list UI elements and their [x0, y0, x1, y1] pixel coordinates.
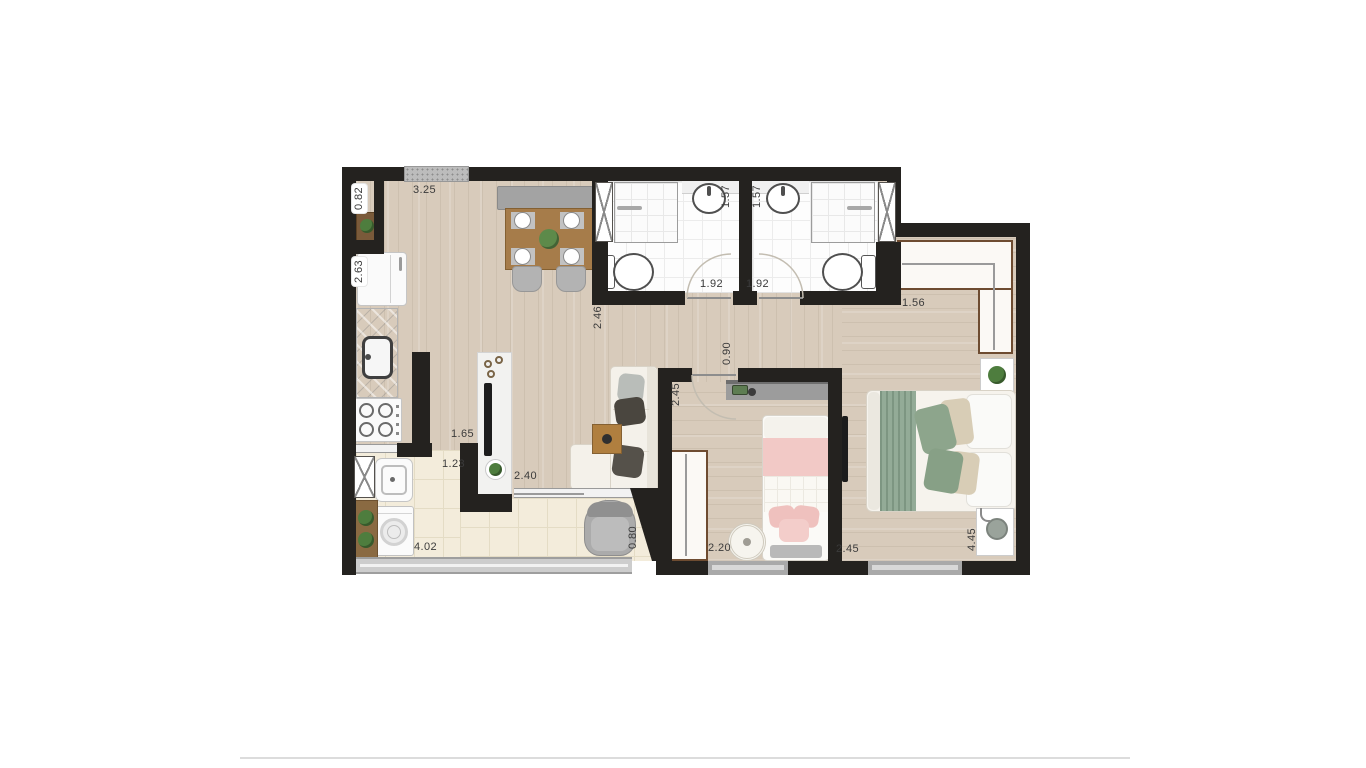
stove — [354, 398, 402, 442]
washer-drum-icon — [387, 525, 401, 539]
wall-bottom-a — [656, 561, 708, 575]
child-bed-base — [770, 545, 822, 558]
bathroom2-toilet-tank — [861, 255, 876, 289]
dim-living-width: 3.25 — [413, 185, 436, 196]
dim-hall-width: 0.90 — [722, 342, 733, 365]
master-closet-right — [978, 288, 1013, 354]
wall-kitchen-service — [397, 443, 432, 457]
stove-knobs — [396, 405, 399, 437]
dim-bath2-depth: 1.57 — [752, 185, 763, 208]
plate-icon — [563, 248, 580, 265]
dim-closet-width: 1.56 — [902, 298, 925, 309]
master-pillow-green — [923, 447, 965, 494]
dim-master-depth: 4.45 — [967, 528, 978, 551]
bathroom1-toilet-bowl — [613, 253, 654, 291]
kitchen-service-door — [356, 444, 397, 453]
plate-icon — [514, 212, 531, 229]
table-centerpiece-plant-icon — [539, 229, 559, 249]
wall-niche-bottom — [342, 240, 384, 254]
dining-chair — [512, 266, 542, 292]
railing-glass-line — [360, 564, 628, 567]
fridge-handle — [399, 257, 402, 271]
side-table-bowl-icon — [602, 434, 612, 444]
floor-plant-icon — [489, 463, 502, 476]
bathroom2-shower — [811, 182, 875, 243]
plant-shelf — [354, 500, 378, 560]
washer-panel-line — [376, 513, 412, 514]
outside-mask — [901, 158, 1033, 223]
balcony-glass-railing — [356, 557, 632, 574]
service-shaft — [354, 456, 375, 498]
master-bed-throw-green — [880, 391, 916, 511]
burner-icon — [378, 422, 393, 437]
fridge-door-line — [390, 255, 391, 303]
dim-niche-width: 0.82 — [352, 184, 367, 213]
master-window-glass — [872, 565, 958, 570]
burner-icon — [359, 403, 374, 418]
decor-bowl-icon — [487, 370, 495, 378]
wall-bath-bottom-a — [592, 291, 685, 305]
bathroom1-faucet-icon — [707, 186, 711, 196]
dim-child-depth: 2.45 — [671, 383, 682, 406]
wall-bath-bottom-b — [800, 291, 880, 305]
armchair-seat — [591, 517, 629, 551]
plate-icon — [563, 212, 580, 229]
child-bed-blanket-pink — [763, 438, 829, 476]
wall-child-master — [828, 368, 842, 561]
armchair-back — [587, 502, 633, 517]
burner-icon — [378, 403, 393, 418]
bath2-shaft — [878, 182, 896, 242]
wall-bath-center — [733, 291, 757, 305]
master-bed-sheet-edge — [868, 392, 880, 510]
toy-truck-wheel-icon — [748, 388, 756, 396]
burner-icon — [359, 422, 374, 437]
child-pillow-pink — [779, 519, 809, 542]
entry-plant-icon — [360, 219, 374, 233]
laundry-tub — [375, 458, 413, 502]
dim-balcony-depth: 0.80 — [628, 526, 639, 549]
washing-machine — [372, 506, 414, 556]
laundry-tub-faucet-icon — [390, 477, 395, 482]
sliding-door-leaf-line — [514, 493, 584, 495]
wall-left — [342, 167, 356, 575]
entry-threshold — [404, 166, 469, 182]
wall-child-top-b — [738, 368, 842, 382]
toy-truck-icon — [732, 385, 748, 395]
wall-child-top-a — [658, 368, 692, 382]
decor-bowl-icon — [484, 360, 492, 368]
dining-bench — [497, 186, 593, 210]
wall-right — [1016, 223, 1030, 575]
dim-master-width: 2.45 — [836, 544, 859, 555]
dim-bath1-width: 1.92 — [700, 279, 723, 290]
dim-child-width: 2.20 — [708, 543, 731, 554]
tv-icon — [484, 383, 492, 456]
sofa-pillow-dark — [613, 396, 646, 427]
wall-bath-right — [876, 242, 901, 305]
wall-tv-horizontal — [460, 494, 512, 512]
bathroom1-towel-bar-icon — [617, 206, 642, 210]
bathroom2-toilet-bowl — [822, 253, 863, 291]
dim-balcony-door: 2.40 — [514, 471, 537, 482]
child-bed-head — [764, 417, 828, 439]
rug-center-icon — [743, 538, 751, 546]
nightstand-plant-icon — [988, 366, 1006, 384]
plate-icon — [514, 248, 531, 265]
wall-bottom-b — [788, 561, 868, 575]
shelf-plant-icon — [358, 510, 374, 526]
balcony-sliding-door — [514, 488, 656, 498]
child-window-glass — [712, 565, 784, 570]
sofa-backrest — [647, 367, 657, 491]
tv-panel — [477, 352, 512, 495]
bathroom2-faucet-icon — [781, 186, 785, 196]
bath1-shaft — [595, 182, 613, 242]
dim-balcony-width: 4.02 — [414, 542, 437, 553]
decor-bowl-icon — [495, 356, 503, 364]
master-tv-icon — [842, 416, 848, 482]
master-pillow-white — [966, 394, 1012, 449]
dim-bath2-width: 1.92 — [746, 279, 769, 290]
bathroom1-shower — [614, 182, 678, 243]
master-closet-top — [897, 240, 1013, 290]
page-divider-line — [240, 757, 1130, 759]
dim-living-depth: 2.46 — [593, 306, 604, 329]
shelf-plant-icon — [358, 532, 374, 548]
wall-kitchen-stub — [412, 352, 430, 452]
dim-service-passage: 1.23 — [442, 459, 465, 470]
floor-plan: 0.82 3.25 1.57 1.57 2.63 2.46 1.92 1.92 … — [0, 0, 1366, 768]
wall-master-top — [895, 223, 1030, 237]
dining-chair — [556, 266, 586, 292]
dim-kitchen-counter: 2.63 — [352, 257, 367, 286]
wall-bottom-c — [962, 561, 1030, 575]
kitchen-faucet-icon — [365, 354, 371, 360]
bathroom2-towel-bar-icon — [847, 206, 872, 210]
dim-kitchen-passage: 1.65 — [451, 429, 474, 440]
dim-bath1-depth: 1.57 — [721, 185, 732, 208]
wall-niche-right — [374, 181, 384, 243]
